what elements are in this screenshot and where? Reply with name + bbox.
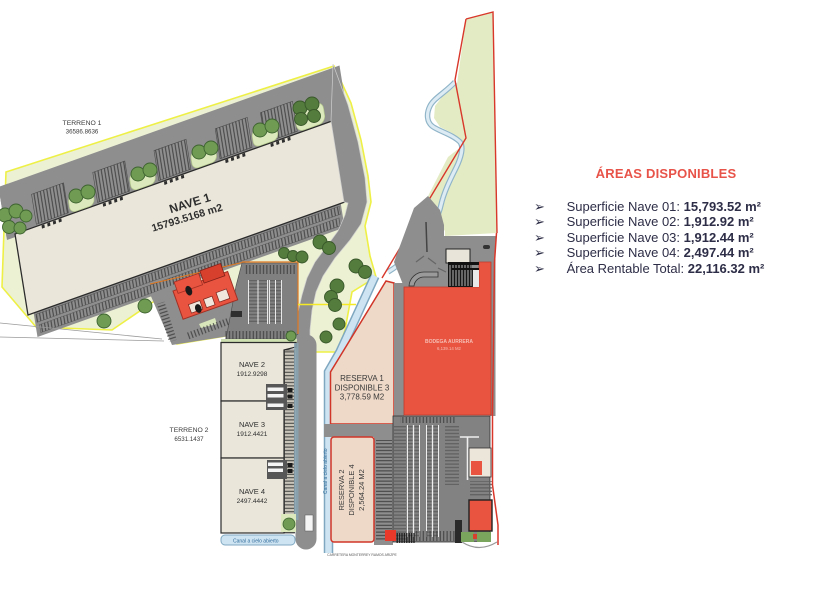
svg-text:CARRETERA MONTERREY RAMOS ARIZ: CARRETERA MONTERREY RAMOS ARIZPE xyxy=(327,553,397,557)
svg-text:RESERVA 1: RESERVA 1 xyxy=(340,374,384,383)
svg-text:3,778.59 M2: 3,778.59 M2 xyxy=(340,393,385,402)
svg-text:TERRENO 1: TERRENO 1 xyxy=(63,120,102,127)
svg-text:Canal a cielo abierto: Canal a cielo abierto xyxy=(233,539,279,545)
svg-text:1912.9298: 1912.9298 xyxy=(237,371,268,378)
svg-text:6,139.14 M2: 6,139.14 M2 xyxy=(437,346,461,351)
svg-text:6531.1437: 6531.1437 xyxy=(174,436,204,443)
svg-text:NAVE 2: NAVE 2 xyxy=(239,360,265,369)
svg-text:NAVE 4: NAVE 4 xyxy=(239,487,265,496)
svg-text:2497.4442: 2497.4442 xyxy=(237,498,268,505)
svg-text:DISPONIBLE 3: DISPONIBLE 3 xyxy=(335,384,390,393)
svg-text:36586.8636: 36586.8636 xyxy=(66,129,99,136)
svg-text:RESERVA 2: RESERVA 2 xyxy=(337,470,346,511)
svg-text:TERRENO 2: TERRENO 2 xyxy=(170,427,209,434)
svg-text:2,564.24 M2: 2,564.24 M2 xyxy=(357,469,366,511)
svg-text:NAVE 3: NAVE 3 xyxy=(239,420,265,429)
svg-text:1912.4421: 1912.4421 xyxy=(237,431,268,438)
svg-text:Canal a cielo abierto: Canal a cielo abierto xyxy=(323,448,329,494)
svg-text:DISPONIBLE 4: DISPONIBLE 4 xyxy=(347,464,356,515)
svg-text:BODEGA AURRERA: BODEGA AURRERA xyxy=(425,339,473,345)
